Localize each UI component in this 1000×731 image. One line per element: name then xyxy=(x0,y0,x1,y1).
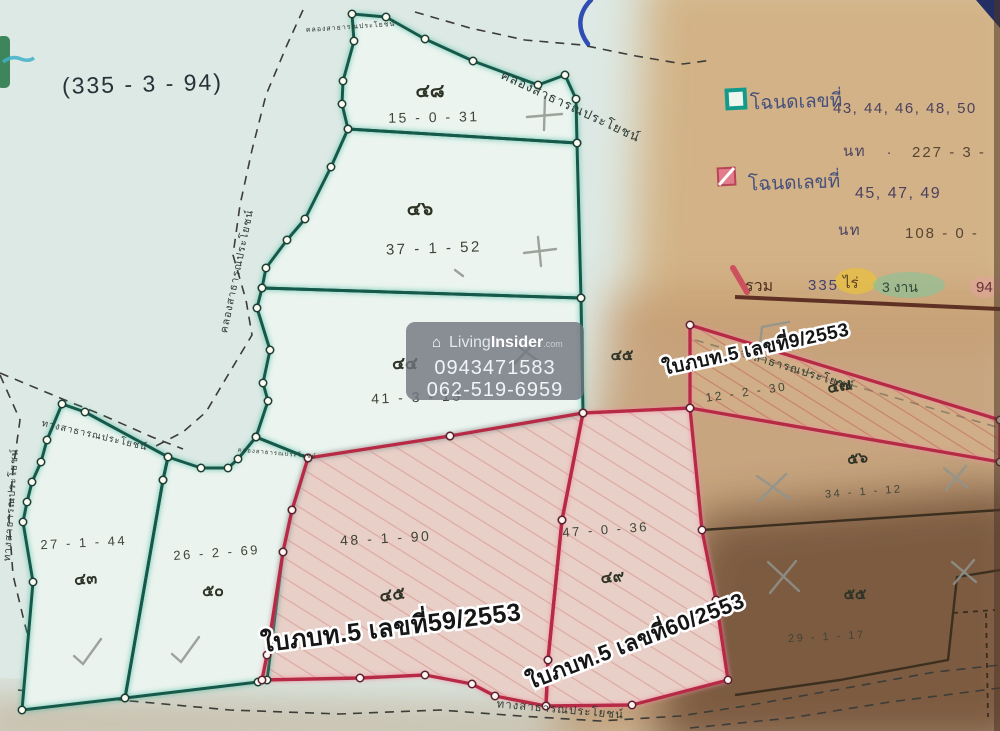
survey-point xyxy=(43,436,50,443)
survey-point xyxy=(348,10,355,17)
right-edge-shadow xyxy=(994,0,1000,731)
survey-point xyxy=(558,516,565,523)
house-icon: ⌂ xyxy=(432,334,441,351)
stray-deed-number: ๔๕ xyxy=(611,347,634,364)
survey-point xyxy=(258,676,265,683)
survey-point xyxy=(224,464,231,471)
survey-point xyxy=(338,100,345,107)
plot-55-deed-number: ๕๕ xyxy=(844,586,867,603)
map-canvas: คลองสาธารณประโยชน์ คลองสาธารณประโยชน์ คล… xyxy=(0,0,1000,731)
survey-point xyxy=(283,236,290,243)
survey-point xyxy=(301,215,308,222)
brand-prefix: Living xyxy=(449,334,491,351)
survey-point xyxy=(327,163,334,170)
survey-point xyxy=(121,694,128,701)
survey-point xyxy=(421,35,428,42)
plot-50-deed-number: ๕๐ xyxy=(202,583,224,600)
survey-point xyxy=(28,478,35,485)
plot-45-deed-number: ๔๕ xyxy=(378,583,406,605)
survey-point xyxy=(259,379,266,386)
legend-total-wa-value: 94 xyxy=(976,279,993,296)
survey-point xyxy=(339,77,346,84)
survey-point xyxy=(382,13,389,20)
survey-point xyxy=(19,518,26,525)
watermark: ⌂ LivingInsider.com 0943471583 062-519-6… xyxy=(406,322,584,401)
survey-point xyxy=(579,409,586,416)
scanned-cadastral-map: คลองสาธารณประโยชน์ คลองสาธารณประโยชน์ คล… xyxy=(0,0,1000,731)
survey-point xyxy=(686,321,693,328)
survey-point xyxy=(18,706,25,713)
survey-point xyxy=(258,284,265,291)
survey-point xyxy=(344,125,351,132)
legend-pink-deed-numbers: 45, 47, 49 xyxy=(855,185,941,202)
survey-point xyxy=(37,458,44,465)
survey-point xyxy=(446,432,453,439)
brand-suffix: Insider xyxy=(491,334,543,351)
survey-total-note: (335 - 3 - 94) xyxy=(62,69,224,99)
plot-46-area: 37 - 1 - 52 xyxy=(386,238,482,258)
legend-teal-deed-numbers: 43, 44, 46, 48, 50 xyxy=(833,100,977,117)
survey-point xyxy=(561,71,568,78)
survey-point xyxy=(421,671,428,678)
legend-total-rai-value: 335 xyxy=(808,277,839,294)
survey-point xyxy=(573,139,580,146)
survey-point xyxy=(577,294,584,301)
watermark-phone-primary: 0943471583 xyxy=(434,357,555,379)
survey-point xyxy=(159,476,166,483)
legend-pink-area-label: นท xyxy=(838,222,861,239)
survey-point xyxy=(253,304,260,311)
survey-point xyxy=(234,455,241,462)
survey-point xyxy=(29,578,36,585)
survey-point xyxy=(164,453,171,460)
survey-point xyxy=(469,57,476,64)
survey-point xyxy=(58,400,65,407)
plot-49-deed-number: ๔๙ xyxy=(600,568,626,587)
survey-point xyxy=(628,701,635,708)
survey-point xyxy=(262,264,269,271)
survey-point xyxy=(197,464,204,471)
survey-point xyxy=(698,526,705,533)
survey-point xyxy=(81,408,88,415)
survey-point xyxy=(264,397,271,404)
survey-point xyxy=(724,676,731,683)
survey-point xyxy=(23,498,30,505)
plot-46-deed-number: ๔๖ xyxy=(407,199,433,220)
plot-56-deed-number: ๕๖ xyxy=(846,449,869,468)
legend-total-label: รวม xyxy=(745,278,773,295)
legend-teal-area-value: 227 - 3 - xyxy=(912,144,986,161)
legend-total-rai-unit: ไร่ xyxy=(842,274,859,292)
survey-point xyxy=(468,680,475,687)
survey-point xyxy=(288,506,295,513)
survey-point xyxy=(279,548,286,555)
survey-point xyxy=(266,346,273,353)
plot-48-deed-number: ๔๘ xyxy=(415,81,444,102)
legend-teal-area-label: นท xyxy=(843,143,866,160)
plot-43-deed-number: ๔๓ xyxy=(73,570,98,589)
plot-48-area: 15 - 0 - 31 xyxy=(388,108,480,126)
legend-total-ngan-value: 3 งาน xyxy=(882,279,918,295)
legend-pink-area-value: 108 - 0 - xyxy=(905,225,979,242)
legend-teal-swatch xyxy=(727,90,746,109)
legend-teal-area-sep: . xyxy=(887,141,893,158)
watermark-phone-secondary: 062-519-6959 xyxy=(427,379,564,401)
survey-point xyxy=(356,674,363,681)
brand-tld: .com xyxy=(543,339,563,349)
survey-point xyxy=(350,37,357,44)
survey-point xyxy=(686,404,693,411)
survey-point xyxy=(252,433,259,440)
